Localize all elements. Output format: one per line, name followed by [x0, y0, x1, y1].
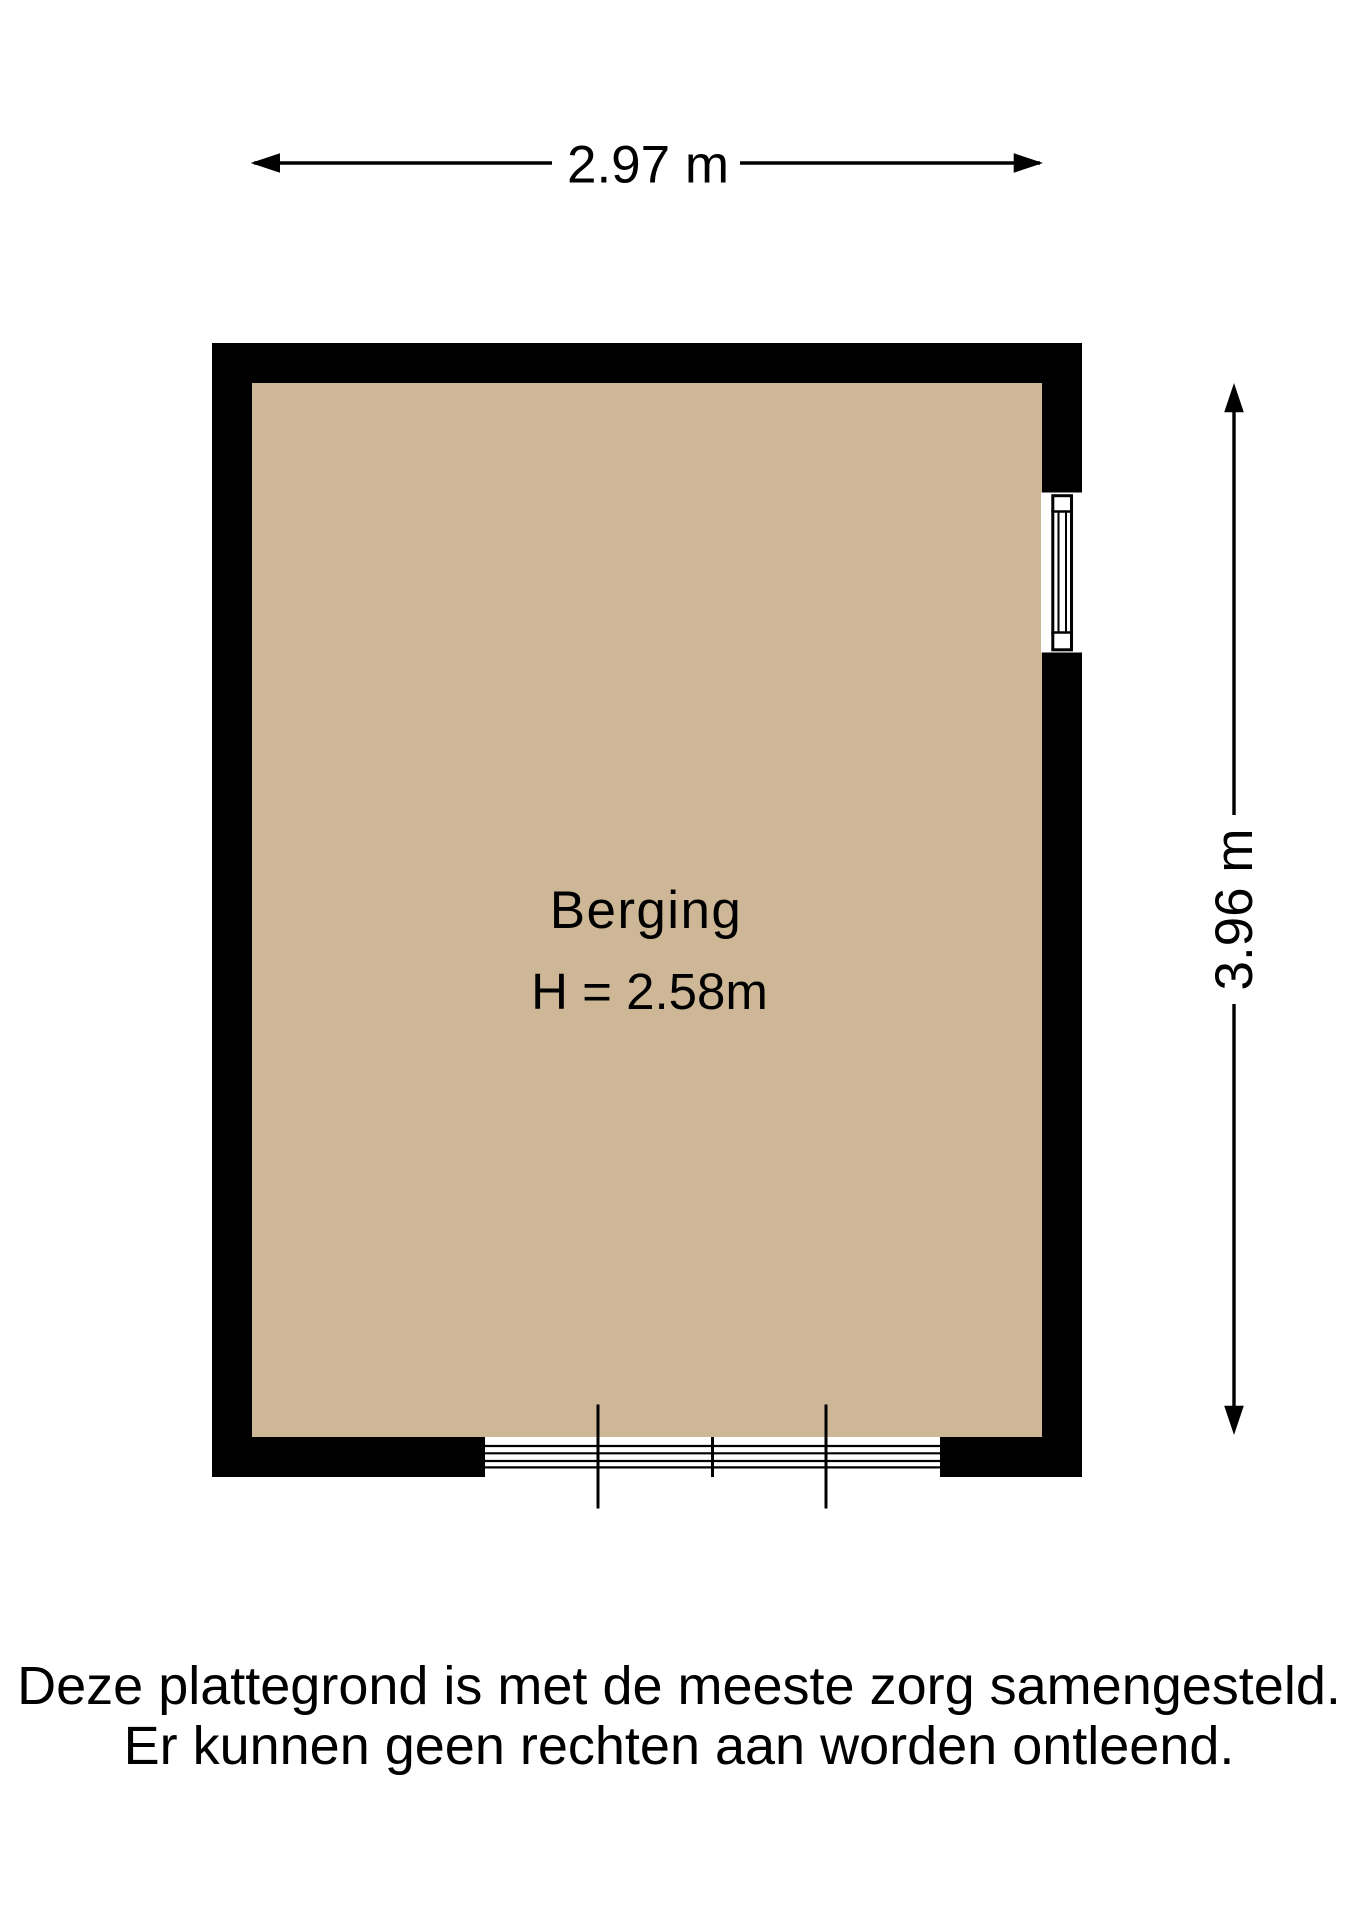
svg-text:3.96 m: 3.96 m — [1205, 828, 1264, 990]
svg-text:Er kunnen geen rechten aan wor: Er kunnen geen rechten aan worden ontlee… — [124, 1716, 1235, 1776]
svg-text:Deze plattegrond is met de mee: Deze plattegrond is met de meeste zorg s… — [17, 1656, 1341, 1716]
svg-text:2.97 m: 2.97 m — [567, 136, 729, 195]
svg-text:Berging: Berging — [550, 881, 742, 940]
svg-text:H = 2.58m: H = 2.58m — [531, 963, 768, 1020]
